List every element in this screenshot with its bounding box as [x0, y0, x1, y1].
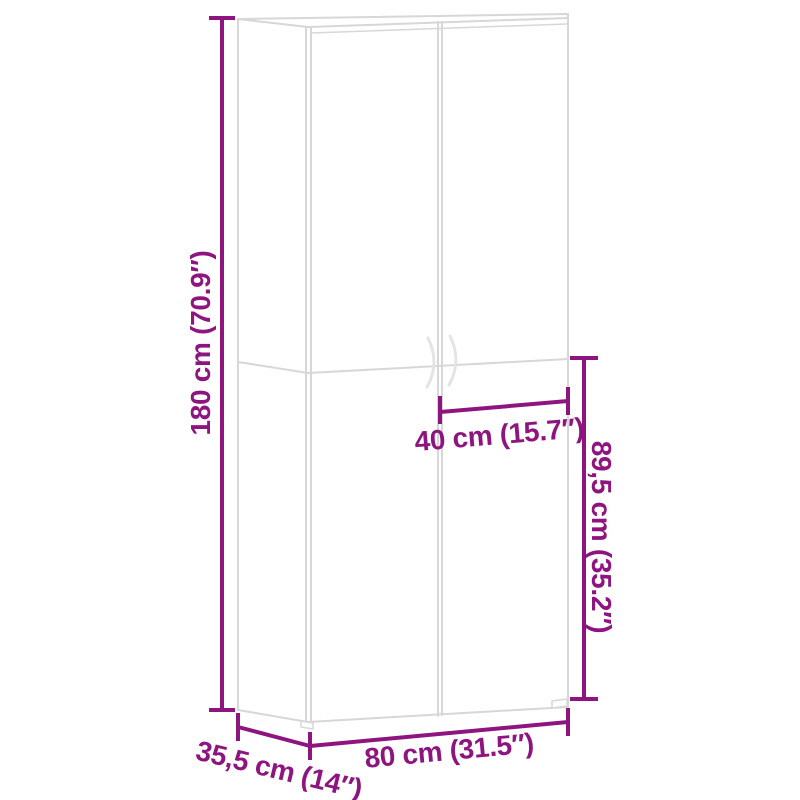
cabinet-drawing [238, 14, 568, 729]
door-width-dimension-line [440, 401, 568, 412]
cabinet-foot-right [552, 699, 567, 708]
shelf-line-side [238, 362, 308, 373]
cabinet-foot-left [301, 721, 313, 729]
cabinet-top-back-edge [238, 14, 568, 19]
cabinet-bottom-side-edge [238, 710, 308, 722]
cabinet-dimension-diagram: 180 cm (70.9″) 40 cm (15.7″) 89,5 cm (35… [0, 0, 800, 800]
width-dimension-label: 80 cm (31.5″) [363, 727, 535, 774]
depth-dimension-line [238, 727, 310, 746]
dimension-diagram-canvas: 180 cm (70.9″) 40 cm (15.7″) 89,5 cm (35… [0, 0, 800, 800]
left-door-handle-icon [427, 338, 434, 387]
depth-dimension [238, 713, 310, 746]
right-door-handle-icon [449, 336, 456, 385]
lower-section-height-dimension-label: 89,5 cm (35.2″) [586, 441, 617, 634]
height-dimension-label: 180 cm (70.9″) [185, 250, 216, 435]
dimension-lines [209, 18, 598, 760]
cabinet-top-side-edge [238, 19, 308, 27]
